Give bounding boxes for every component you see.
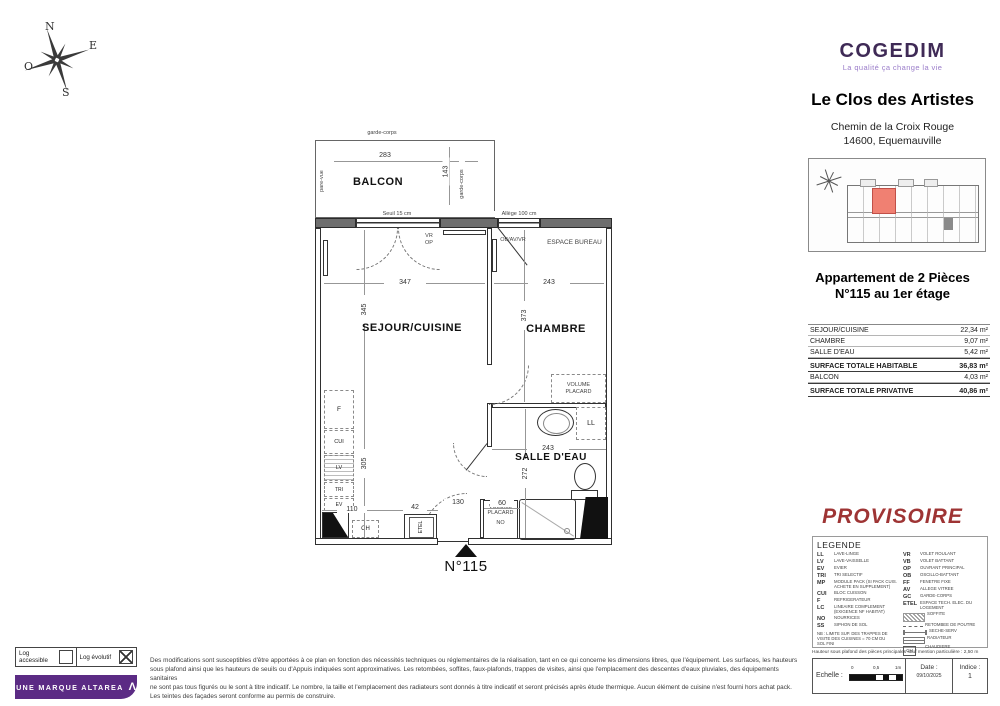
- provisoire-watermark: PROVISOIRE: [790, 505, 995, 529]
- altarea-banner: UNE MARQUE ALTAREA Λ: [15, 675, 137, 699]
- room-label-salle-eau: SALLE D'EAU: [512, 453, 590, 463]
- table-row: BALCON 4,03 m²: [808, 372, 990, 383]
- area-label: BALCON: [810, 374, 839, 381]
- index-label: Indice :: [953, 664, 987, 671]
- dim-110: 110: [337, 506, 367, 513]
- sorting-box: TRI: [324, 482, 354, 497]
- checkbox-evolutif-label: Log évolutif: [80, 654, 112, 661]
- area-value: 9,07 m²: [964, 338, 988, 345]
- legend-right-column: VRVOLET ROULANT VBVOLET BATTANT OPOUVRAN…: [903, 552, 983, 657]
- duct-shaft: [322, 512, 349, 538]
- disclaimer-line4: Les teintes des façades seront conforme …: [150, 693, 805, 702]
- room-label-chambre: CHAMBRE: [517, 324, 595, 335]
- wall-bathroom-left: [487, 403, 492, 447]
- address-line2: 14600, Equemauville: [790, 134, 995, 148]
- wall-lintel: [315, 218, 356, 228]
- radiator: [323, 240, 328, 276]
- altarea-logo-icon: Λ: [129, 681, 136, 693]
- legend-soffit-symbol: SOFFITE: [903, 612, 983, 622]
- area-label: CHAMBRE: [810, 338, 845, 345]
- area-value: 5,42 m²: [964, 349, 988, 356]
- checkbox-accessible: Log accessible: [16, 648, 77, 666]
- table-row-total-habitable: SURFACE TOTALE HABITABLE 36,83 m²: [808, 358, 990, 372]
- fridge-box: F: [324, 390, 354, 429]
- radiator: [443, 230, 486, 235]
- checkbox-evolutif: Log évolutif: [77, 648, 137, 666]
- apartment-title-line2: N°115 au 1er étage: [790, 286, 995, 302]
- disclaimer-text: Des modifications sont susceptibles d'êt…: [150, 657, 805, 702]
- disclaimer-line1: Des modifications sont susceptibles d'êt…: [150, 657, 805, 666]
- entry-threshold: [438, 541, 468, 542]
- dim-42: 42: [403, 504, 427, 511]
- etel-label: ETEL: [418, 516, 424, 538]
- ceiling-height-note: Hauteur sous plafond des pièces principa…: [812, 650, 988, 655]
- scale-cell: Echelle : 0 0,5 1m: [813, 659, 906, 693]
- area-value: 36,83 m²: [959, 361, 988, 370]
- key-plan-highlight-unit: [872, 188, 896, 214]
- no-label: NO: [484, 520, 517, 526]
- legend-left-column: LLLAVE-LINGE LVLAVE-VAISSELLE EVEVIER TR…: [817, 552, 897, 657]
- dim-347: 347: [384, 279, 426, 286]
- boiler-box: CH: [352, 520, 379, 538]
- table-row: CHAMBRE 9,07 m²: [808, 336, 990, 347]
- washbasin: [537, 409, 574, 436]
- area-label: SURFACE TOTALE HABITABLE: [810, 361, 917, 370]
- cogedim-logo: COGEDIM: [790, 40, 995, 63]
- scale-bar: [849, 674, 903, 681]
- logement-checkboxes: Log accessible Log évolutif: [15, 647, 137, 667]
- key-plan-compass-icon: [813, 165, 845, 197]
- legend-nb-note: NB : LIMITE SUP. DES TRAPPES DE VISITE D…: [817, 631, 893, 646]
- table-row-total-privative: SURFACE TOTALE PRIVATIVE 40,86 m²: [808, 383, 990, 397]
- checkbox-accessible-box[interactable]: [59, 650, 73, 664]
- balcony-door-window: [356, 218, 440, 228]
- brand-block: COGEDIM La qualité ça change la vie: [790, 40, 995, 72]
- floor-plan-sheet: N E S O garde-corps 283 BALCON 143 pare-…: [0, 0, 1000, 706]
- apartment-title: Appartement de 2 Pièces N°115 au 1er éta…: [790, 270, 995, 303]
- checkbox-evolutif-box[interactable]: [119, 650, 133, 664]
- bathroom-door-swing: [453, 443, 487, 477]
- scale-label: Echelle :: [816, 672, 843, 679]
- dim-272: 272: [522, 459, 529, 488]
- compass-n: N: [45, 20, 55, 33]
- seuil-label: Seuil 15 cm: [363, 211, 431, 217]
- key-plan-building: [847, 185, 979, 243]
- compass-rose: N E S O: [12, 15, 107, 110]
- shower-tray: [519, 499, 576, 540]
- bedroom-closet-label: VOLUME PLACARD: [564, 382, 594, 394]
- toilet-bowl: [574, 463, 596, 490]
- bedroom-closet: VOLUME PLACARD: [551, 374, 606, 403]
- checkbox-accessible-label: Log accessible: [19, 650, 59, 664]
- areas-table: SEJOUR/CUISINE 22,34 m² CHAMBRE 9,07 m² …: [808, 324, 990, 397]
- window-opening-line: [497, 227, 527, 265]
- apartment-title-line1: Appartement de 2 Pièces: [790, 270, 995, 286]
- dim-345: 345: [361, 295, 368, 324]
- brand-tagline: La qualité ça change la vie: [790, 63, 995, 72]
- compass-e: E: [89, 39, 97, 52]
- wall-lintel: [540, 218, 612, 228]
- key-plan-thumbnail: [808, 158, 986, 252]
- compass-o: O: [24, 60, 33, 73]
- date-cell: Date : 09/10/2025: [906, 659, 953, 693]
- washing-machine-box: LL: [576, 407, 606, 440]
- allege-label: Allège 100 cm: [490, 211, 548, 217]
- wall-bottom-left: [315, 538, 438, 545]
- date-value: 09/10/2025: [906, 673, 952, 679]
- etel-closet: ETEL: [404, 514, 437, 539]
- pare-vue-label: pare-vue: [319, 164, 325, 198]
- espace-bureau-label: ESPACE BUREAU: [547, 239, 602, 246]
- table-row: SALLE D'EAU 5,42 m²: [808, 347, 990, 358]
- wall-lintel: [440, 218, 498, 228]
- unit-number: N°115: [438, 558, 494, 575]
- dim-283: 283: [365, 152, 405, 159]
- legend-box: LEGENDE LLLAVE-LINGE LVLAVE-VAISSELLE EV…: [812, 536, 988, 648]
- duct-shaft: [580, 497, 608, 539]
- project-address: Chemin de la Croix Rouge 14600, Equemauv…: [790, 120, 995, 148]
- hob-box: CUI: [324, 430, 354, 454]
- compass-s: S: [62, 86, 70, 99]
- dim-130: 130: [444, 499, 472, 506]
- ob-av-vr-label: OB/AV/VR: [494, 237, 532, 243]
- room-label-balcon: BALCON: [338, 177, 418, 188]
- altarea-banner-text: UNE MARQUE ALTAREA: [16, 683, 124, 692]
- dishwasher-box: LV: [324, 455, 354, 481]
- area-label: SURFACE TOTALE PRIVATIVE: [810, 386, 913, 395]
- project-title: Le Clos des Artistes: [790, 90, 995, 110]
- bedroom-window: [498, 218, 540, 228]
- disclaimer-line2: sous plafond ainsi que les hauteurs de s…: [150, 666, 805, 684]
- area-value: 4,03 m²: [964, 374, 988, 381]
- guardrail-top-label: garde-corps: [332, 130, 432, 136]
- balcony-door-swing-left: [356, 228, 398, 270]
- disclaimer-line3: ne sont pas tous figurés ou le sont à ti…: [150, 684, 805, 693]
- entrance-arrow: [455, 544, 477, 557]
- op-label: OP: [418, 240, 440, 246]
- vr-label: VR: [418, 233, 440, 239]
- table-row: SEJOUR/CUISINE 22,34 m²: [808, 325, 990, 336]
- area-label: SEJOUR/CUISINE: [810, 327, 869, 334]
- date-label: Date :: [906, 664, 952, 671]
- dim-60: 60: [490, 500, 514, 507]
- title-block: Echelle : 0 0,5 1m Date : 09/10/2025 Ind…: [812, 658, 988, 694]
- room-label-sejour: SEJOUR/CUISINE: [352, 323, 472, 334]
- area-value: 22,34 m²: [960, 327, 988, 334]
- radiator: [492, 239, 497, 272]
- index-cell: Indice : 1: [953, 659, 987, 693]
- dim-line-283: [334, 161, 478, 162]
- area-label: SALLE D'EAU: [810, 349, 855, 356]
- area-value: 40,86 m²: [959, 386, 988, 395]
- legend-towel-dryer-symbol: SECHE-SERV: [903, 629, 983, 635]
- address-line1: Chemin de la Croix Rouge: [790, 120, 995, 134]
- legend-radiator-symbol: RADIATEUR: [903, 636, 983, 644]
- dim-line-60: [484, 508, 520, 509]
- dim-243b: 243: [527, 445, 569, 452]
- wall-left: [315, 228, 321, 545]
- bedroom-door-swing: [489, 365, 529, 405]
- index-value: 1: [953, 673, 987, 680]
- dim-305: 305: [361, 449, 368, 478]
- guardrail-right-label: garde-corps: [459, 160, 465, 208]
- legend-title: LEGENDE: [817, 540, 983, 550]
- dim-143: 143: [443, 158, 450, 186]
- dim-243: 243: [528, 279, 570, 286]
